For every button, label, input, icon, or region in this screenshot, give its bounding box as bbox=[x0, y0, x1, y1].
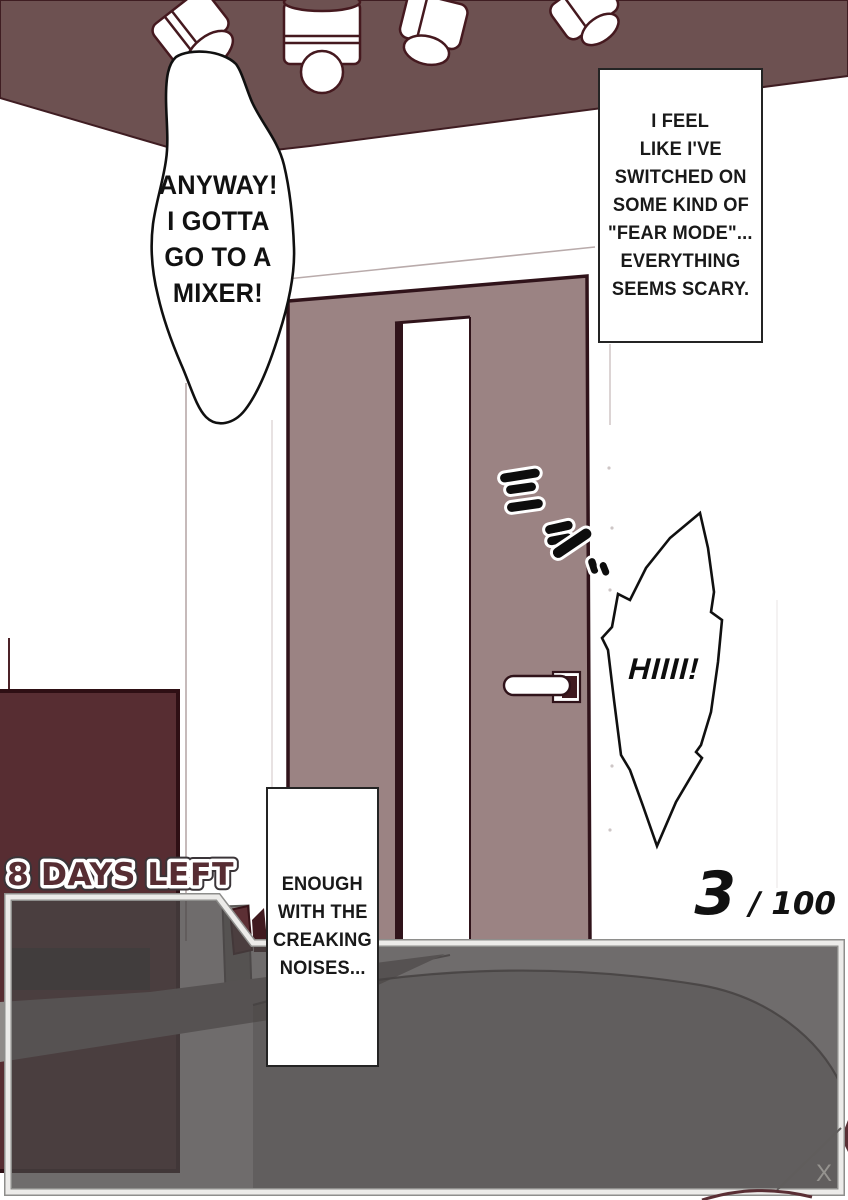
speech-line: MIXER! bbox=[173, 275, 263, 311]
counter-total: / 100 bbox=[749, 889, 836, 920]
caption-line: NOISES... bbox=[280, 955, 366, 983]
speech-hiii-text: HIIII! bbox=[611, 653, 717, 687]
speech-line: GO TO A bbox=[164, 239, 271, 275]
speech-line: ANYWAY! bbox=[159, 167, 278, 203]
door-window bbox=[403, 316, 470, 943]
speech-mixer-text: ANYWAY! I GOTTA GO TO A MIXER! bbox=[138, 167, 298, 311]
caption-creaking-box: ENOUGH WITH THE CREAKING NOISES... bbox=[266, 787, 379, 1067]
caption-line: "FEAR MODE"... bbox=[608, 220, 753, 248]
caption-line: I FEEL bbox=[652, 108, 710, 136]
caption-line: EVERYTHING bbox=[621, 248, 741, 276]
days-left-text: 8 DAYS LEFT bbox=[7, 857, 234, 893]
days-left-badge: 8 DAYS LEFT 8 DAYS LEFT 8 DAYS LEFT bbox=[7, 857, 234, 893]
caption-fear-box: I FEEL LIKE I'VE SWITCHED ON SOME KIND O… bbox=[598, 68, 763, 343]
caption-line: ENOUGH bbox=[282, 871, 363, 899]
game-screen: X 8 DAYS LEFT 8 DAYS LEFT 8 DAYS LEFT I … bbox=[0, 0, 848, 1200]
counter-current: 3 bbox=[694, 864, 736, 924]
dialog-close-button[interactable]: X bbox=[816, 1160, 832, 1187]
caption-line: SWITCHED ON bbox=[615, 164, 747, 192]
caption-line: CREAKING bbox=[273, 927, 372, 955]
caption-line: SEEMS SCARY. bbox=[612, 276, 749, 304]
speech-line: I GOTTA bbox=[167, 203, 269, 239]
caption-line: LIKE I'VE bbox=[639, 136, 721, 164]
dialog-box[interactable]: X bbox=[8, 897, 841, 1192]
caption-line: WITH THE bbox=[278, 899, 368, 927]
progress-counter: 3 / 100 bbox=[694, 864, 836, 924]
caption-line: SOME KIND OF bbox=[612, 192, 748, 220]
